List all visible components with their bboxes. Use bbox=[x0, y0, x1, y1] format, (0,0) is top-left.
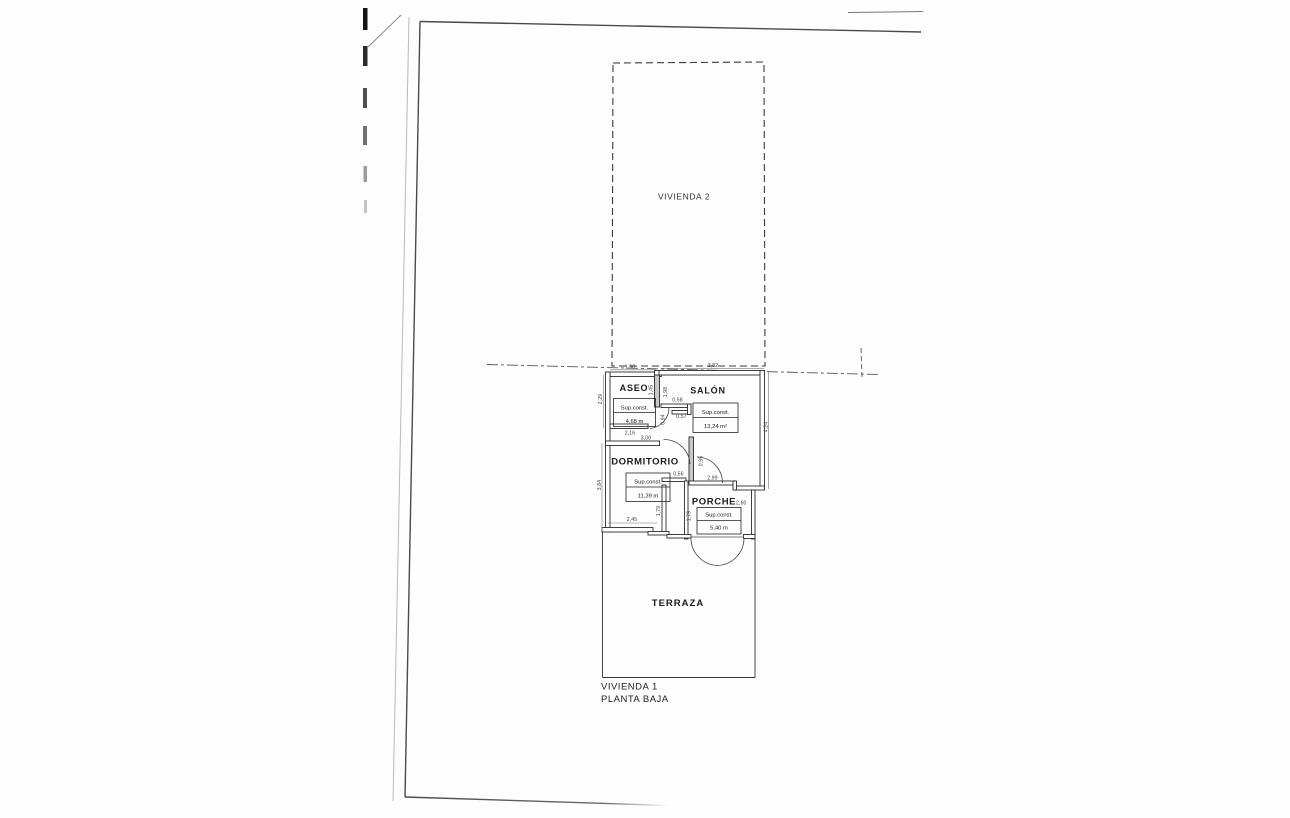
dash-mark bbox=[364, 200, 367, 213]
dash-mark bbox=[363, 46, 368, 66]
frame-bottom-line bbox=[405, 797, 668, 806]
salon-area-box: Sup.const. 13,24 m² bbox=[693, 403, 738, 433]
wall-terraza-top-right bbox=[744, 535, 756, 539]
dash-mark bbox=[363, 8, 368, 30]
wall-hall-jamb bbox=[688, 404, 692, 415]
wall-terraza-step bbox=[648, 532, 669, 536]
dim-label: 0,56 bbox=[673, 472, 684, 478]
dim-label: 3,84 bbox=[597, 480, 603, 491]
dim-label: 0,58 bbox=[672, 398, 683, 404]
terraza-label: TERRAZA bbox=[652, 598, 704, 609]
wall-hall-chicane-1 bbox=[661, 404, 691, 408]
terraza-french-door-right-arc bbox=[717, 538, 744, 566]
area-value: 11,39 m bbox=[638, 494, 659, 500]
vivienda2-parcel: VIVIENDA 2 bbox=[612, 62, 765, 366]
dim-label: 3,82 bbox=[708, 363, 719, 369]
frame-top-line bbox=[420, 22, 921, 33]
vivienda2-label: VIVIENDA 2 bbox=[658, 192, 710, 202]
wall-dormitorio-top bbox=[606, 441, 660, 446]
dim-label: 2,29 bbox=[598, 394, 604, 405]
wall-terraza-top-left bbox=[667, 535, 691, 539]
sup-const-label: Sup.const. bbox=[621, 406, 649, 412]
dash-mark bbox=[363, 126, 367, 145]
dim-label: 4,24 bbox=[763, 422, 769, 433]
floor-plan-drawing: VIVIENDA 2 bbox=[0, 0, 1290, 818]
planta-baja-label: PLANTA BAJA bbox=[601, 694, 669, 705]
area-value: 4,68 m bbox=[626, 419, 644, 425]
area-value: 5,40 m bbox=[710, 526, 728, 532]
wall-hall-step bbox=[662, 478, 686, 482]
salon-label: SALÓN bbox=[690, 385, 726, 396]
wall-salon-top bbox=[659, 371, 765, 376]
wall-porche-right bbox=[752, 490, 756, 539]
dim-label: 2,99 bbox=[707, 476, 718, 482]
scanned-floor-plan-page: VIVIENDA 2 bbox=[0, 0, 1290, 818]
boundary-tick-line bbox=[861, 348, 862, 377]
dash-mark bbox=[363, 88, 367, 108]
vivienda1-label: VIVIENDA 1 bbox=[601, 682, 658, 693]
dim-label: 0,95 bbox=[699, 456, 705, 467]
wall-left-exterior bbox=[606, 372, 611, 532]
wall-aseo-top bbox=[610, 372, 656, 377]
dash-mark bbox=[364, 166, 368, 182]
wall-dormitorio-right bbox=[662, 485, 666, 532]
dormitorio-label: DORMITORIO bbox=[611, 457, 679, 468]
frame-left-line bbox=[405, 22, 420, 798]
porche-width-dim-label: 2,60 bbox=[736, 501, 747, 507]
terraza-french-door-left-arc bbox=[691, 538, 718, 566]
aseo-area-box: Sup.const. 4,68 m bbox=[614, 399, 656, 427]
dim-label: 1,45 bbox=[649, 385, 655, 396]
dim-label: 3,00 bbox=[641, 436, 652, 442]
dim-label: 1,98 bbox=[663, 387, 669, 398]
wall-porche-top bbox=[689, 481, 736, 485]
wall-step-connector bbox=[733, 481, 737, 490]
aseo-label: ASEO bbox=[620, 383, 649, 393]
wall-porche-left bbox=[685, 481, 689, 539]
drawing-frame bbox=[405, 12, 923, 806]
area-value: 13,24 m² bbox=[704, 424, 727, 430]
left-dashed-margin-line bbox=[363, 8, 368, 213]
title-labels: VIVIENDA 1 PLANTA BAJA bbox=[601, 682, 669, 706]
fold-diagonal-line bbox=[368, 15, 401, 47]
dim-label: 1,79 bbox=[687, 511, 693, 522]
plan-walls bbox=[602, 371, 765, 540]
porche-area-box: Sup.const. 5,40 m bbox=[697, 508, 741, 535]
wall-salon-bottom bbox=[735, 486, 765, 490]
porche-label: PORCHE bbox=[692, 497, 736, 508]
dim-label: 0,57 bbox=[676, 414, 687, 420]
dim-label: 1,98 bbox=[625, 365, 636, 371]
wall-dormitorio-bottom bbox=[602, 528, 653, 533]
dim-label: 1,79 bbox=[656, 506, 662, 517]
frame-upper-right-line bbox=[848, 12, 923, 13]
dim-label: 0,94 bbox=[661, 414, 667, 425]
dim-label: 2,16 bbox=[625, 431, 636, 437]
sup-const-label: Sup.const. bbox=[634, 480, 662, 486]
sup-const-label: Sup.const. bbox=[705, 513, 733, 519]
sup-const-label: Sup.const. bbox=[702, 410, 730, 416]
dim-label: 2,45 bbox=[627, 517, 638, 523]
vivienda2-dashed-outline bbox=[612, 62, 765, 366]
